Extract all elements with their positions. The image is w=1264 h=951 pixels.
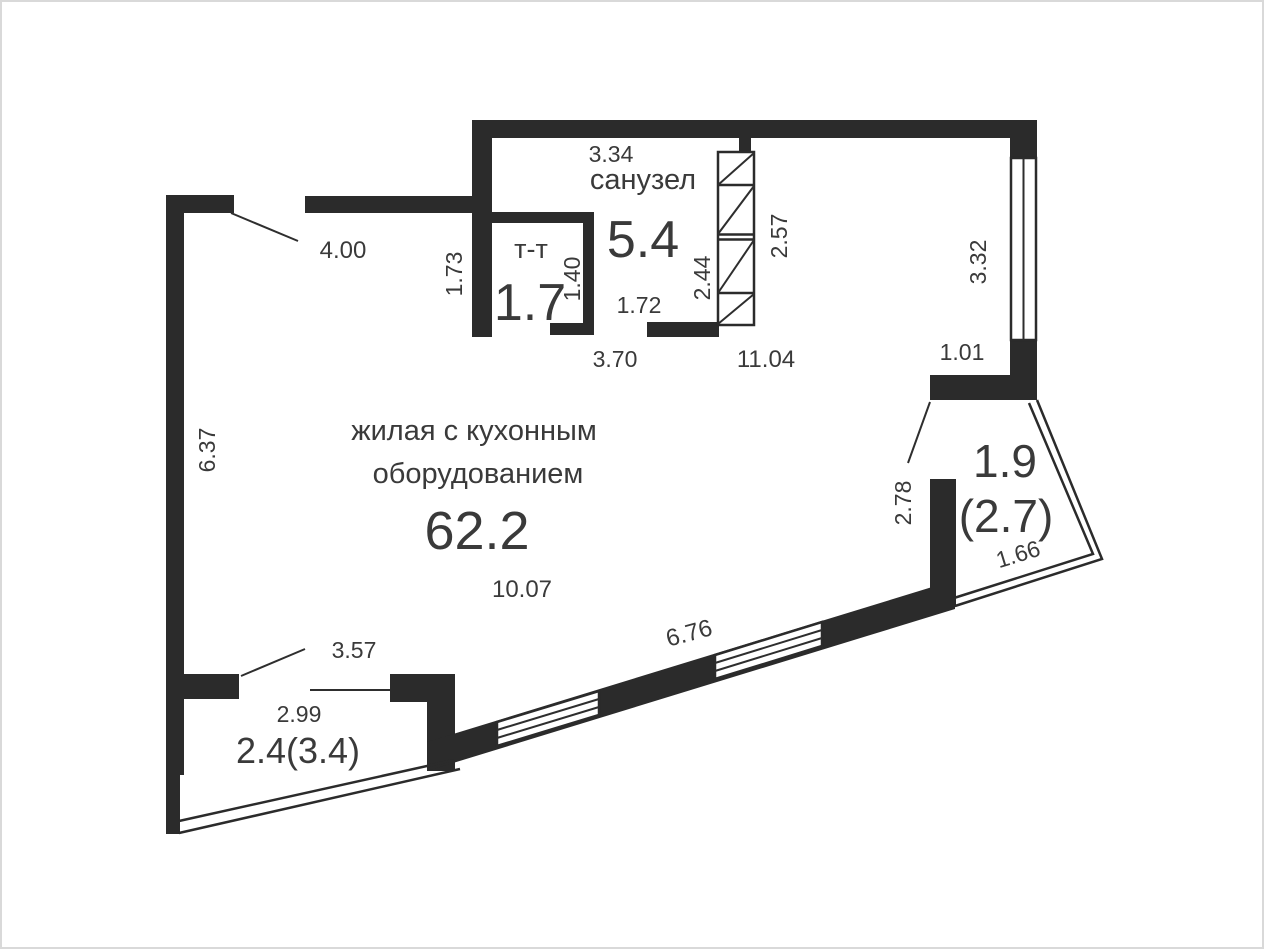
wall-corridor-vertical (472, 120, 492, 337)
wall-balcony-right-divider (930, 479, 956, 607)
dim-bathroom-bottom: 3.70 (593, 346, 638, 372)
leader-balcony-right (908, 402, 930, 463)
dim-right-window: 3.32 (965, 240, 991, 285)
dim-right-pier: 1.01 (940, 339, 985, 365)
wall-right-top-block (1010, 120, 1037, 158)
room-balcony-right-area-alt: (2.7) (959, 490, 1054, 542)
wall-top-left (305, 196, 492, 213)
room-living-name-line2: оборудованием (373, 458, 584, 490)
leader-entry (231, 213, 298, 241)
dim-balcony-bottom-opening: 3.57 (332, 637, 377, 663)
dim-storage-depth: 1.40 (559, 257, 585, 302)
wall-balcony-right-top (930, 375, 1037, 400)
dim-corridor: 1.73 (441, 252, 467, 297)
ventilation-shaft (718, 152, 754, 325)
dim-apartment-width: 11.04 (737, 346, 795, 373)
room-living-area: 62.2 (424, 501, 529, 561)
room-storage-area: 1.7 (494, 274, 566, 332)
window-sloped-2 (715, 622, 822, 679)
wall-bathroom-bottom (647, 322, 719, 337)
floor-plan-page: 3.34 санузел 5.4 1.72 3.70 т-т 1.7 1.40 … (0, 0, 1264, 949)
room-balcony-bottom-area: 2.4(3.4) (236, 730, 360, 771)
room-bathroom-area: 5.4 (607, 211, 679, 269)
window-right (1011, 158, 1036, 340)
dim-living-width: 10.07 (492, 576, 552, 603)
room-bathroom-name: санузел (590, 164, 696, 196)
dim-sloped-window: 6.76 (663, 614, 715, 652)
wall-bottom-stub (166, 674, 239, 699)
dim-balcony-right-door: 2.78 (890, 481, 916, 526)
wall-top (472, 120, 1037, 138)
window-sloped-1 (497, 691, 599, 746)
room-living-name-line1: жилая с кухонным (351, 415, 597, 447)
dim-shaft-left: 2.44 (689, 255, 715, 300)
dim-shaft-right: 2.57 (766, 214, 792, 259)
dim-bathroom-door: 1.72 (617, 292, 662, 318)
dim-balcony-bottom-width: 2.99 (277, 701, 322, 727)
room-storage-name: т-т (514, 234, 548, 264)
leader-balcony-bottom (241, 649, 305, 676)
wall-storage-top (490, 212, 594, 223)
wall-left-lower (166, 775, 180, 834)
dim-entry-wall: 4.00 (320, 237, 367, 264)
labels: 3.34 санузел 5.4 1.72 3.70 т-т 1.7 1.40 … (194, 141, 1053, 771)
floor-plan-drawing: 3.34 санузел 5.4 1.72 3.70 т-т 1.7 1.40 … (2, 2, 1264, 951)
room-balcony-right-area: 1.9 (973, 435, 1037, 487)
dim-left-wall: 6.37 (194, 428, 220, 473)
